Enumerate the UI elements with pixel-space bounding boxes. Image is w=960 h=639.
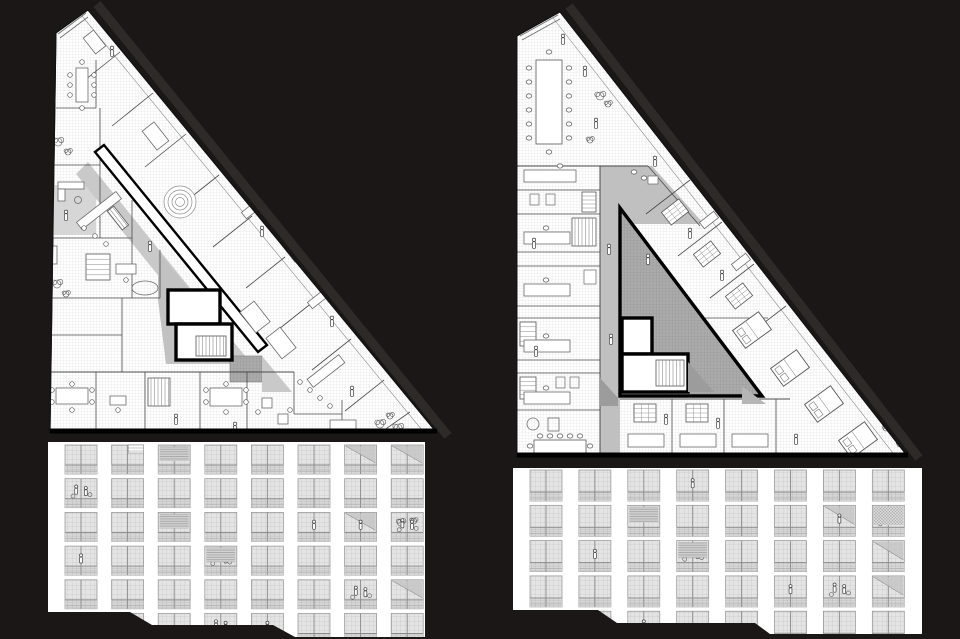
facade-window [823, 576, 855, 607]
facade-window [579, 576, 611, 607]
drawing-canvas [0, 0, 960, 639]
facade-window [345, 580, 377, 609]
facade-window [158, 512, 190, 541]
facade-window [872, 470, 904, 501]
facade-window [391, 614, 423, 639]
facade-window [823, 541, 855, 572]
facade-window [112, 479, 144, 508]
facade-window [628, 541, 660, 572]
facade-window [530, 505, 562, 536]
facade-window [391, 445, 423, 474]
facade-window [65, 580, 97, 609]
facade-window [677, 505, 709, 536]
facade-window [158, 546, 190, 575]
facade-window [205, 580, 237, 609]
facade-window [298, 479, 330, 508]
facade-window [530, 541, 562, 572]
facade-window [823, 505, 855, 536]
facade-window [298, 614, 330, 639]
facade-window [872, 541, 904, 572]
facade-window [726, 576, 758, 607]
facade-window [251, 445, 283, 474]
facade-window [775, 576, 807, 607]
facade-window [65, 546, 97, 575]
facade-window [726, 505, 758, 536]
facade-window [65, 512, 97, 541]
facade-window [298, 580, 330, 609]
facade-window [677, 576, 709, 607]
facade-window [579, 505, 611, 536]
facade-window [391, 512, 423, 541]
facade-window [112, 580, 144, 609]
facade-window [726, 541, 758, 572]
facade-window [345, 614, 377, 639]
axonometric-floor-plans-drawing [0, 0, 960, 639]
facade-window [579, 541, 611, 572]
facade-window [298, 445, 330, 474]
facade-window [775, 470, 807, 501]
facade-window [345, 445, 377, 474]
facade-window [298, 546, 330, 575]
facade-window [726, 470, 758, 501]
facade-window [205, 512, 237, 541]
facade-window [677, 541, 709, 572]
facade-window [251, 546, 283, 575]
facade-elevation [48, 442, 425, 639]
facade-window [530, 470, 562, 501]
facade-window [391, 546, 423, 575]
facade-window [158, 580, 190, 609]
facade-window [628, 505, 660, 536]
facade-window [628, 470, 660, 501]
facade-window [112, 445, 144, 474]
facade-window [677, 470, 709, 501]
facade-window [872, 505, 904, 536]
facade-window [205, 546, 237, 575]
facade-window [251, 580, 283, 609]
facade-window [823, 470, 855, 501]
facade-window [65, 445, 97, 474]
facade-window [345, 512, 377, 541]
facade-window [205, 445, 237, 474]
facade-window [298, 512, 330, 541]
facade-window [391, 479, 423, 508]
facade-window [775, 505, 807, 536]
facade-window [775, 541, 807, 572]
facade-window [530, 576, 562, 607]
facade-window [251, 512, 283, 541]
facade-window [345, 546, 377, 575]
facade-window [205, 479, 237, 508]
facade-window [872, 576, 904, 607]
facade-window [112, 512, 144, 541]
facade-elevation [513, 468, 922, 639]
facade-window [65, 479, 97, 508]
facade-window [579, 470, 611, 501]
facade-window [391, 580, 423, 609]
facade-window [251, 479, 283, 508]
facade-window [158, 479, 190, 508]
facade-window [345, 479, 377, 508]
facade-window [628, 576, 660, 607]
facade-window [158, 445, 190, 474]
facade-window [112, 546, 144, 575]
